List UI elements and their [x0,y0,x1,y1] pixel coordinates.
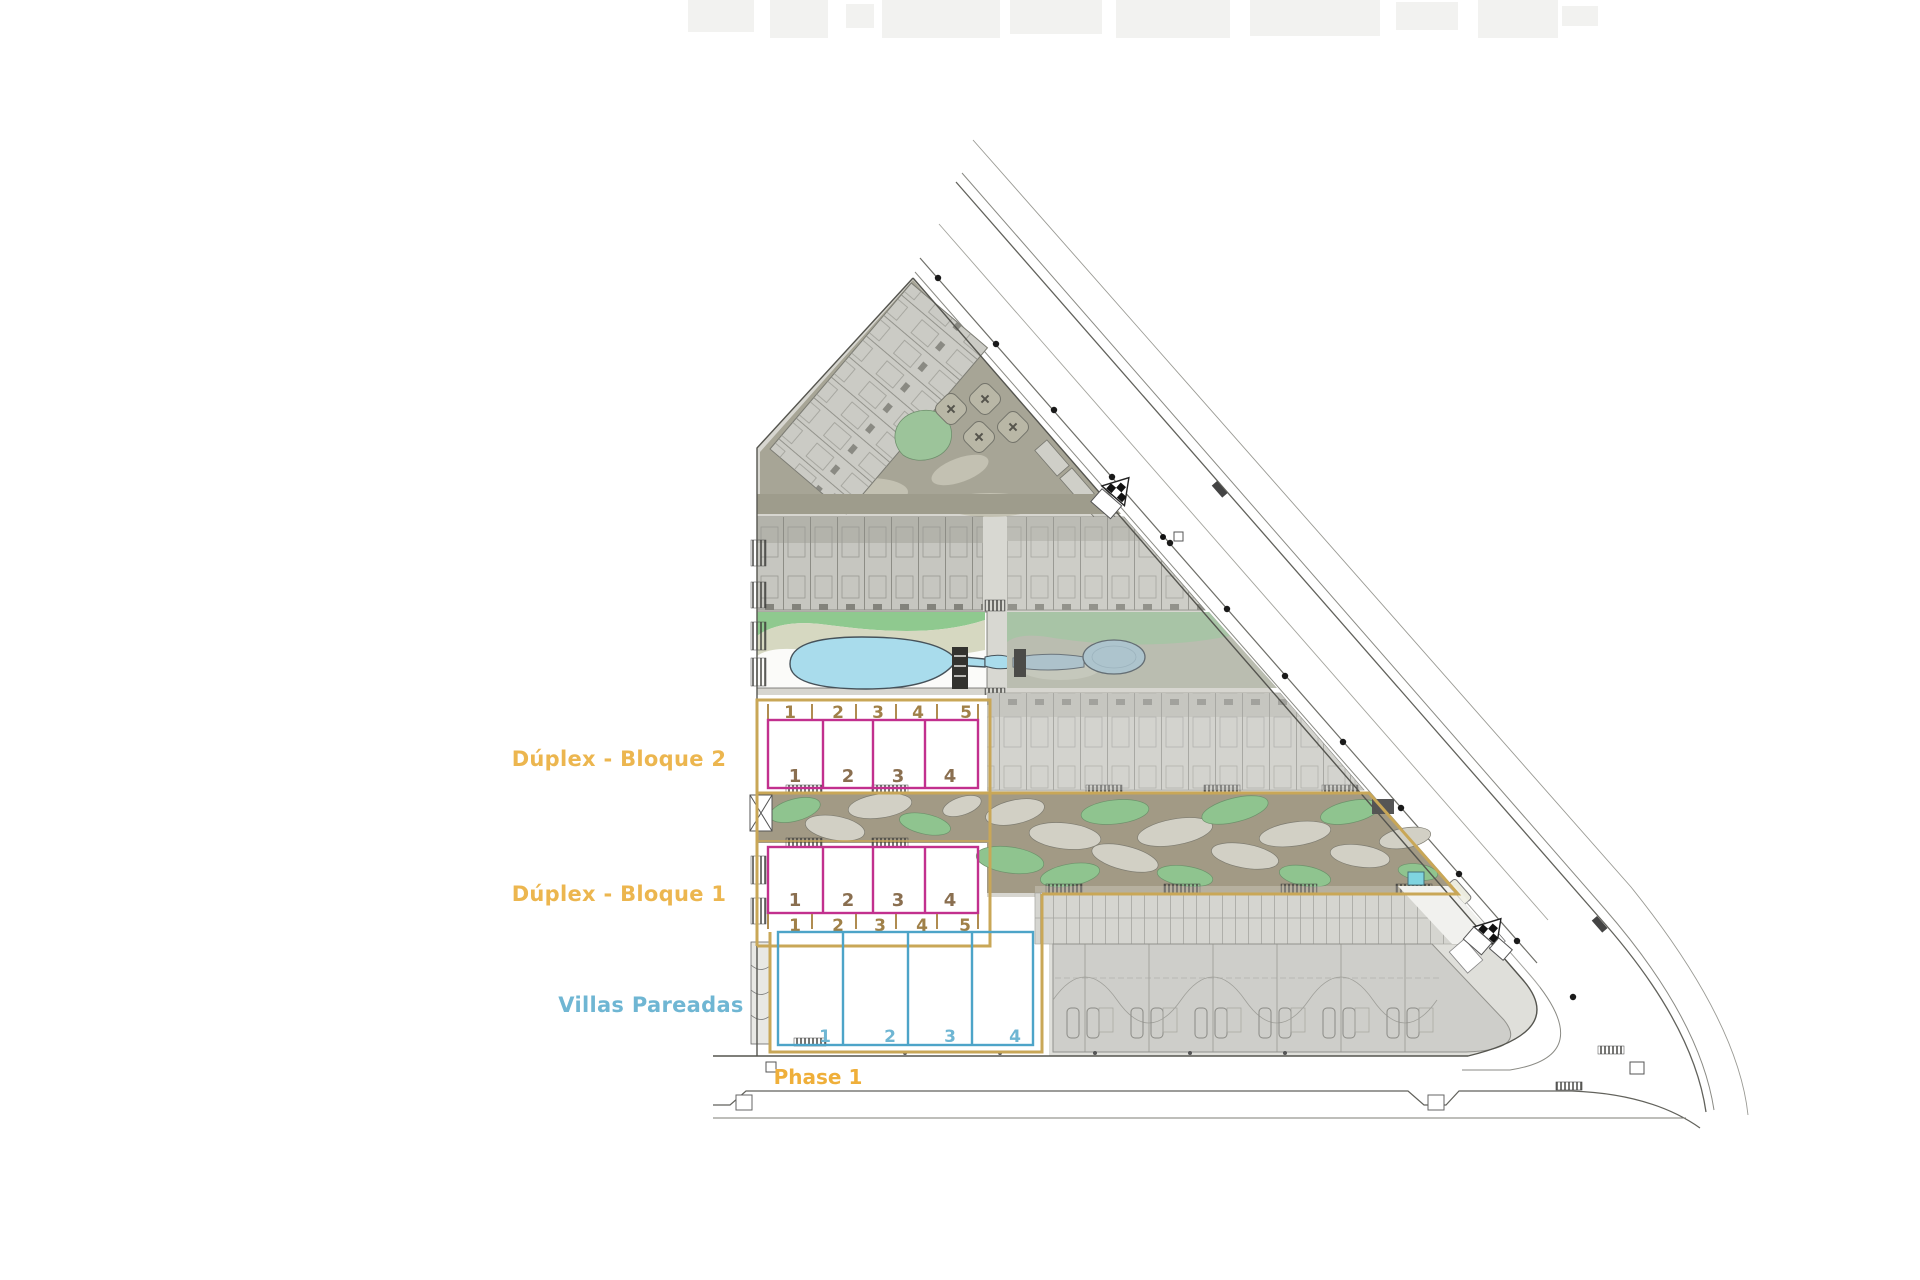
access-path [757,494,1121,514]
villas-unit-number: 3 [944,1027,956,1047]
ghost-top-strip [688,0,1598,38]
bloque1-unit-number: 4 [944,890,957,911]
stair-hatch [1598,1046,1624,1054]
villas-unit-number: 1 [819,1027,831,1047]
label-duplex-bloque-1: Dúplex - Bloque 1 [512,882,727,906]
phase-muting [987,517,1540,1056]
small-square [1174,532,1183,541]
pool-bridge [952,647,968,689]
bloque1-unit-number: 2 [842,890,855,911]
villas-unit-number: 4 [1009,1027,1021,1047]
label-phase-1: Phase 1 [774,1065,863,1089]
bloque2-unit-number: 4 [944,766,957,787]
label-villas-pareadas: Villas Pareadas [558,993,743,1017]
site-plan-page: 1 2 3 4 5 1 2 3 4 1 2 3 4 1 2 3 4 5 1 2 [0,0,1920,1280]
driveway-box [1428,1095,1444,1110]
survey-dot [1160,534,1166,540]
bloque2-unit-number: 1 [789,766,802,787]
crosswalk-hatch [1556,1082,1582,1090]
spa-square [1408,872,1424,885]
bloque1-unit-number: 1 [789,890,802,911]
top-section [757,280,1121,532]
bloque2-unit-number: 2 [842,766,855,787]
bottom-road-upper-line [713,1091,1700,1128]
driveway-box [736,1095,752,1110]
phase1-highlight [755,695,987,1056]
bloque1-unit-number: 3 [892,890,905,911]
site-plan-drawing: 1 2 3 4 5 1 2 3 4 1 2 3 4 1 2 3 4 5 1 2 [0,0,1920,1280]
label-duplex-bloque-2: Dúplex - Bloque 2 [512,747,727,771]
small-square [1630,1062,1644,1074]
villas-unit-number: 2 [884,1027,896,1047]
ramp [751,942,771,1044]
bloque2-unit-number: 3 [892,766,905,787]
